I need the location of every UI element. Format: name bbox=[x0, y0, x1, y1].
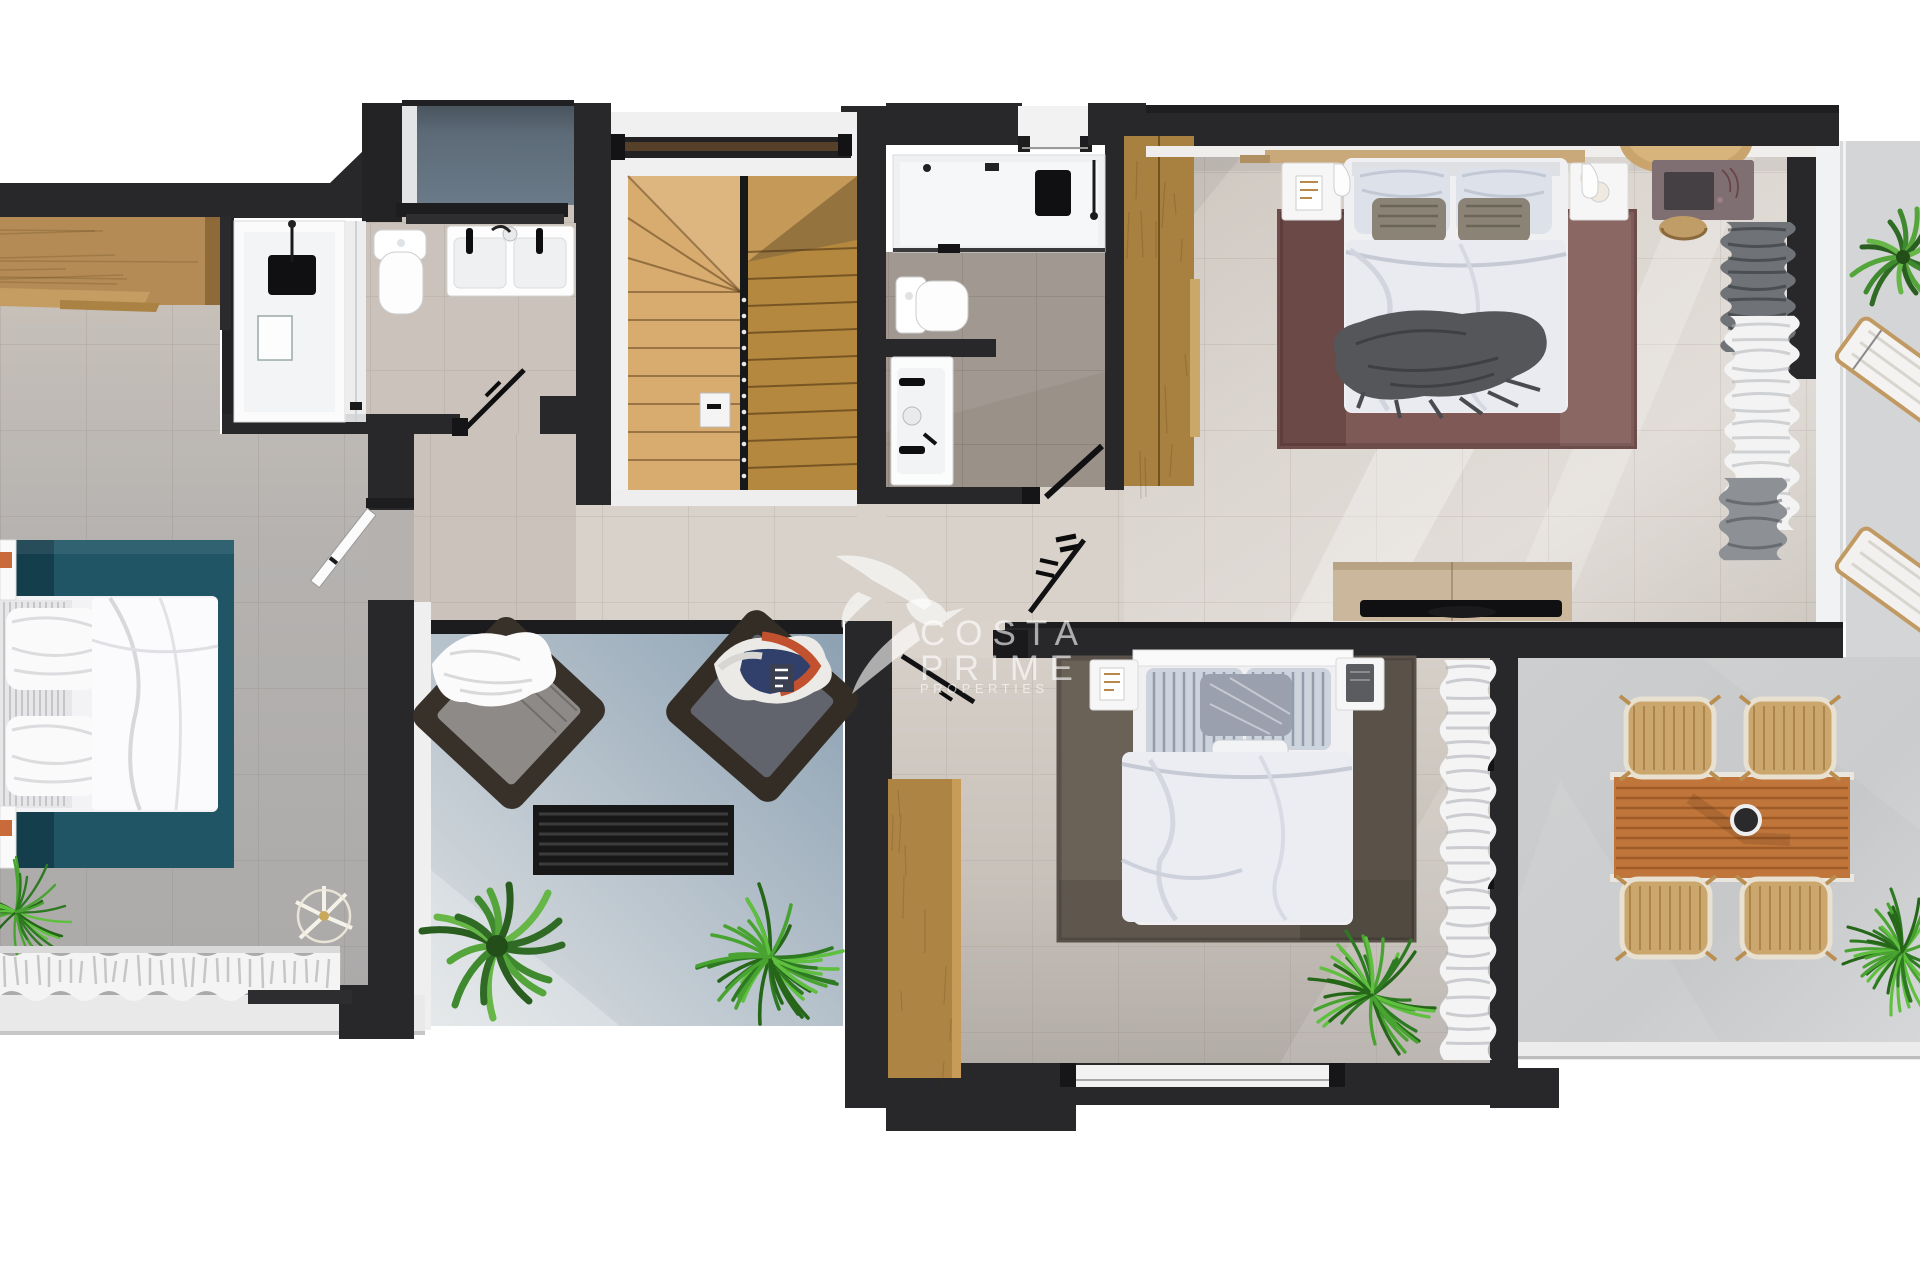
svg-text:COSTA: COSTA bbox=[920, 614, 1088, 653]
svg-text:PROPERTIES: PROPERTIES bbox=[920, 681, 1049, 696]
